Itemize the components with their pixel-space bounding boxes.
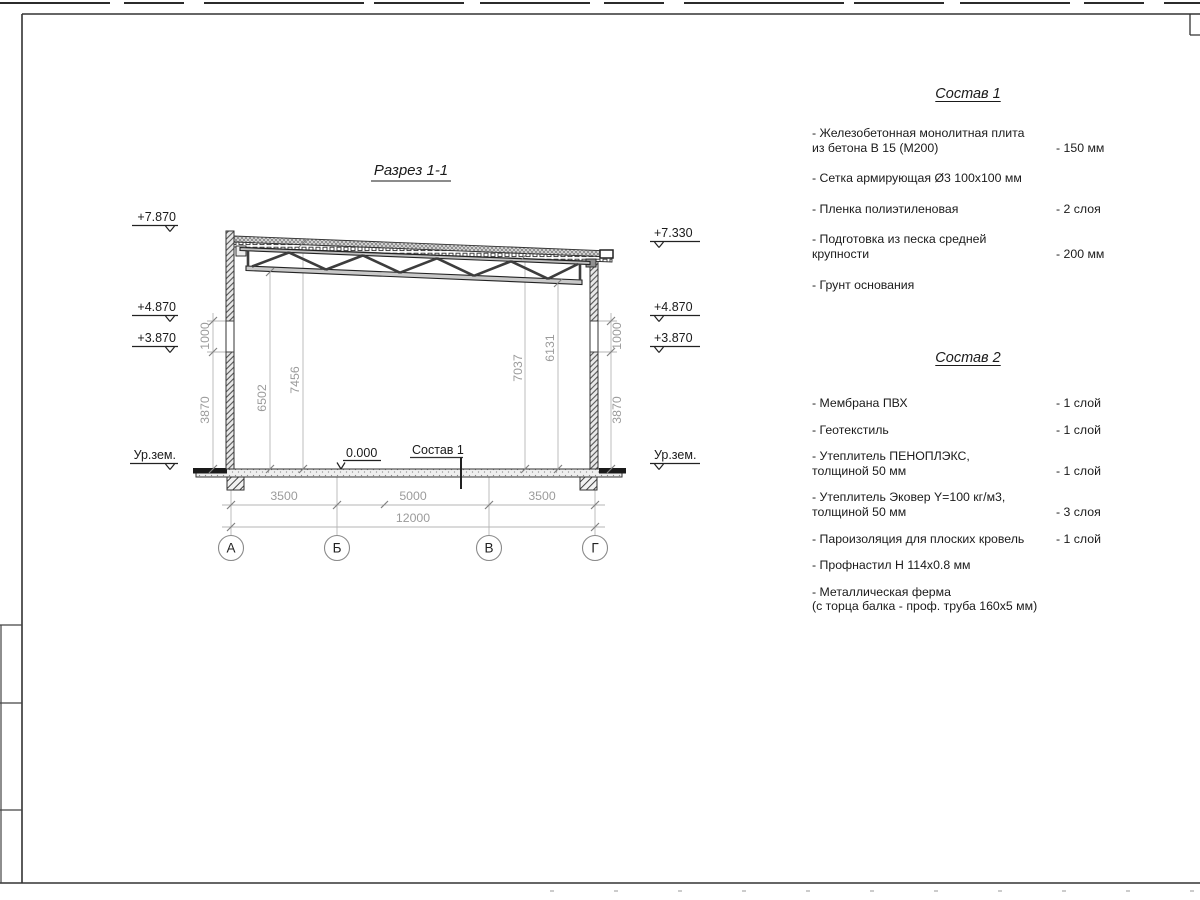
section-title: Разрез 1-1 xyxy=(374,162,448,179)
dimension-label: 7037 xyxy=(511,354,525,382)
dimension-label: 1000 xyxy=(198,322,212,350)
elevation-label: Ур.зем. xyxy=(134,448,176,462)
footing-left xyxy=(227,477,244,490)
list-item: - Утеплитель Эковер Y=100 кг/м3, толщино… xyxy=(812,490,1124,519)
ground-level-mark-right xyxy=(599,468,626,474)
truss-bottom-chord xyxy=(246,266,582,285)
list-item: - Утеплитель ПЕНОПЛЭКС, толщиной 50 мм -… xyxy=(812,449,1124,478)
axis-bubbles: А Б В Г xyxy=(219,536,608,561)
list-item-text: - Металлическая ферма (с торца балка - п… xyxy=(812,585,1056,614)
elevation-label: +3.870 xyxy=(137,331,176,345)
dimension-label: 3870 xyxy=(610,396,624,424)
elevation-label: Ур.зем. xyxy=(654,448,696,462)
elevation-label: +3.870 xyxy=(654,331,693,345)
dimension-label: 3500 xyxy=(270,489,298,503)
list-item-text: - Грунт основания xyxy=(812,278,1056,293)
elevation-label: +7.870 xyxy=(137,210,176,224)
elevation-label: +7.330 xyxy=(654,226,693,240)
list-item-value: - 3 слоя xyxy=(1056,505,1101,520)
axis-label: Г xyxy=(591,541,599,556)
list-item: - Геотекстиль - 1 слой xyxy=(812,423,1124,438)
floor-composition-ref: Состав 1 xyxy=(410,443,464,489)
elevation-arrow-icon xyxy=(132,226,178,232)
dimension-label: 5000 xyxy=(399,489,427,503)
dimension-label: 3500 xyxy=(528,489,556,503)
section-drawing: 6502 7456 7037 6131 1000 3870 1000 3870 … xyxy=(130,210,700,561)
dimension-label: 1000 xyxy=(610,322,624,350)
list-item-value: - 2 слоя xyxy=(1056,202,1101,217)
list-item-value: - 150 мм xyxy=(1056,141,1104,156)
list-item: - Подготовка из песка средней крупности … xyxy=(812,232,1124,261)
list-item-text: - Пленка полиэтиленовая xyxy=(812,202,1056,217)
section-title-group: Разрез 1-1 xyxy=(371,162,451,181)
list-item-text: - Утеплитель ПЕНОПЛЭКС, толщиной 50 мм xyxy=(812,449,1056,478)
composition-2: Состав 2 - Мембрана ПВХ - 1 слой - Геоте… xyxy=(812,350,1124,626)
elevation-arrow-icon xyxy=(132,316,178,322)
list-item: - Профнастил Н 114x0.8 мм xyxy=(812,558,1124,573)
zero-level-mark: 0.000 xyxy=(337,446,381,469)
dimension-label: 7456 xyxy=(288,366,302,394)
axis-label: В xyxy=(484,541,493,556)
list-item-value: - 200 мм xyxy=(1056,247,1104,262)
list-item-text: - Мембрана ПВХ xyxy=(812,396,1056,411)
elevation-arrow-icon xyxy=(337,461,381,470)
dimension-label: 6502 xyxy=(255,384,269,412)
list-item-text: - Профнастил Н 114x0.8 мм xyxy=(812,558,1056,573)
list-item-value: - 1 слой xyxy=(1056,464,1101,479)
floor-slab xyxy=(193,468,626,490)
wall-left-band xyxy=(227,322,234,352)
vertical-dimension-labels: 6502 7456 7037 6131 1000 3870 1000 3870 xyxy=(198,322,624,424)
dimension-label: 12000 xyxy=(396,511,430,525)
zero-level-label: 0.000 xyxy=(346,446,377,460)
composition-2-title: Состав 2 xyxy=(812,350,1124,366)
list-item: - Металлическая ферма (с торца балка - п… xyxy=(812,585,1124,614)
elevation-label: +4.870 xyxy=(654,300,693,314)
list-item: - Сетка армирующая Ø3 100x100 мм xyxy=(812,171,1124,186)
edge-beam-tube xyxy=(600,250,613,258)
list-item-value: - 1 слой xyxy=(1056,396,1101,411)
dimension-label: 6131 xyxy=(543,334,557,362)
corner-box xyxy=(1190,14,1200,35)
list-item-text: - Геотекстиль xyxy=(812,423,1056,438)
elevation-arrow-icon xyxy=(130,464,178,470)
floor-ref-label: Состав 1 xyxy=(412,443,464,457)
elevation-arrow-icon xyxy=(650,242,700,248)
list-item: - Пленка полиэтиленовая - 2 слоя xyxy=(812,202,1124,217)
elevation-marks-left: +7.870 +4.870 +3.870 Ур.зем. xyxy=(130,210,178,470)
list-item-text: - Железобетонная монолитная плита из бет… xyxy=(812,126,1056,155)
dimension-label: 3870 xyxy=(198,396,212,424)
list-item-text: - Сетка армирующая Ø3 100x100 мм xyxy=(812,171,1056,186)
axis-label: А xyxy=(226,541,235,556)
elevation-arrow-icon xyxy=(650,316,700,322)
bottom-dimension-labels: 3500 5000 3500 12000 xyxy=(270,489,556,525)
composition-1-title: Состав 1 xyxy=(812,86,1124,102)
list-item: - Мембрана ПВХ - 1 слой xyxy=(812,396,1124,411)
composition-1: Состав 1 - Железобетонная монолитная пли… xyxy=(812,86,1124,308)
list-item-value: - 1 слой xyxy=(1056,423,1101,438)
list-item-text: - Утеплитель Эковер Y=100 кг/м3, толщино… xyxy=(812,490,1056,519)
list-item: - Пароизоляция для плоских кровель - 1 с… xyxy=(812,532,1124,547)
elevation-arrow-icon xyxy=(650,347,700,353)
elevation-arrow-icon xyxy=(132,347,178,353)
list-item-text: - Подготовка из песка средней крупности xyxy=(812,232,1056,261)
left-margin-boxes xyxy=(0,625,22,883)
list-item: - Грунт основания xyxy=(812,278,1124,293)
footing-right xyxy=(580,477,597,490)
elevation-label: +4.870 xyxy=(137,300,176,314)
wall-right xyxy=(590,261,598,469)
axis-label: Б xyxy=(333,541,342,556)
elevation-marks-right: +7.330 +4.870 +3.870 Ур.зем. xyxy=(650,226,700,470)
wall-right-band xyxy=(591,322,598,352)
list-item-text: - Пароизоляция для плоских кровель xyxy=(812,532,1056,547)
list-item-value: - 1 слой xyxy=(1056,532,1101,547)
elevation-arrow-icon xyxy=(650,464,700,470)
list-item: - Железобетонная монолитная плита из бет… xyxy=(812,126,1124,155)
